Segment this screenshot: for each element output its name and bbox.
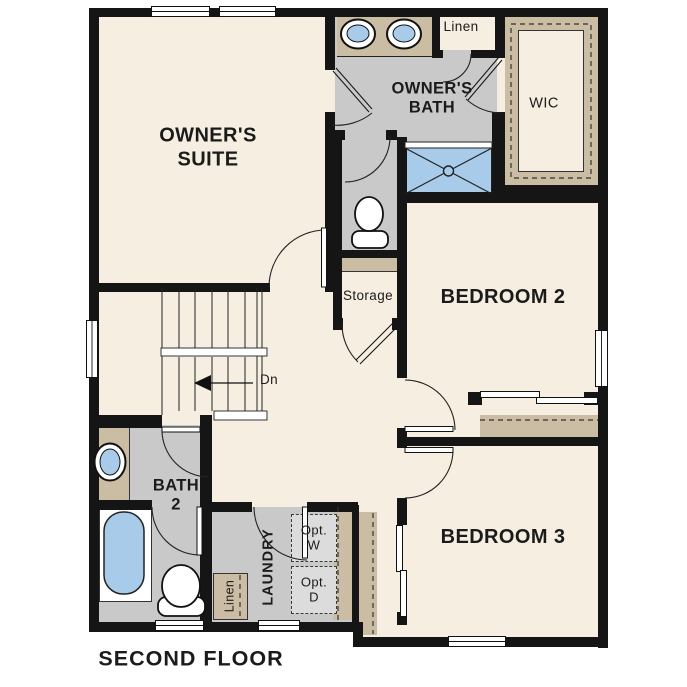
room-label-storage: Storage [343,288,393,304]
wall-linen-stub-right [471,50,495,58]
room-label-laundry: LAUNDRY [260,528,277,605]
storage-shelf [342,258,397,272]
wall-wic-bottom [492,185,608,195]
wall-exterior-right [598,8,608,648]
stairs-dn-label: Dn [260,372,278,388]
wall-bedroom2-3-divider [397,437,608,446]
owners-toilet-room-floor [342,197,397,253]
window-bedroom3-bottom [448,636,506,647]
room-label-linen-upper: Linen [443,19,478,35]
room-label-bath2: BATH 2 [153,477,199,516]
optional-washer-label: Opt. W [301,523,327,554]
window-laundry-bottom [258,620,300,631]
room-label-bedroom3: BEDROOM 3 [441,526,566,550]
wall-bath2-top-a [89,415,162,428]
window-owners-suite-1 [151,6,210,17]
room-label-owners-suite: OWNER'S SUITE [159,124,257,171]
wall-toilet-bottom [337,250,397,258]
window-stair-left [86,320,98,378]
wall-hall-c [397,498,407,525]
shower-pan [405,145,492,195]
wall-laundry-closet-divider [352,505,359,625]
wall-hall-a [397,137,407,378]
wall-exterior-bottom-upper [89,622,363,632]
wall-bath2-mid [89,500,152,510]
plan-title: SECOND FLOOR [98,646,283,671]
tub-recess [99,505,152,602]
room-label-owners-bath: OWNER'S BATH [392,80,473,119]
bedroom3-closet-slider-b [400,570,407,617]
wall-toilet-stub-left [333,130,345,140]
bedroom2-closet-slider-a [480,391,540,398]
bedroom3-closet-slider-a [396,525,403,572]
bedroom3-closet-shelf [358,512,377,635]
wall-storage-stub-left [333,318,343,330]
wall-exterior-jog [353,622,363,647]
window-owners-suite-2 [219,6,276,17]
wall-owners-suite-right-a [325,8,335,70]
owners-bath-vanity [337,17,433,57]
bath2-vanity [99,428,130,502]
wall-linen-stub-left [432,50,443,58]
room-label-wic: WIC [529,95,558,112]
bedroom2-closet-shelf [480,415,598,437]
bedroom2-closet-slider-b [536,397,598,404]
wall-toilet-stub-right [386,130,397,140]
wall-wic-left-a [495,8,505,58]
room-label-bedroom2: BEDROOM 2 [441,286,566,310]
wall-bath-column-left [333,130,342,330]
wall-laundry-top-b [307,502,358,512]
wall-laundry-top-a [212,502,252,512]
wall-bath2-right [200,415,212,632]
floor-plan: OWNER'S SUITE OWNER'S BATH Linen WIC BED… [0,0,687,687]
wall-owners-suite-bottom-a [89,283,270,292]
window-bedroom2-right [595,330,608,387]
optional-dryer-label: Opt. D [301,575,327,606]
window-bath2-bottom [155,620,204,631]
room-label-linen-lower: Linen [223,580,238,613]
wall-linen-left [432,8,440,50]
